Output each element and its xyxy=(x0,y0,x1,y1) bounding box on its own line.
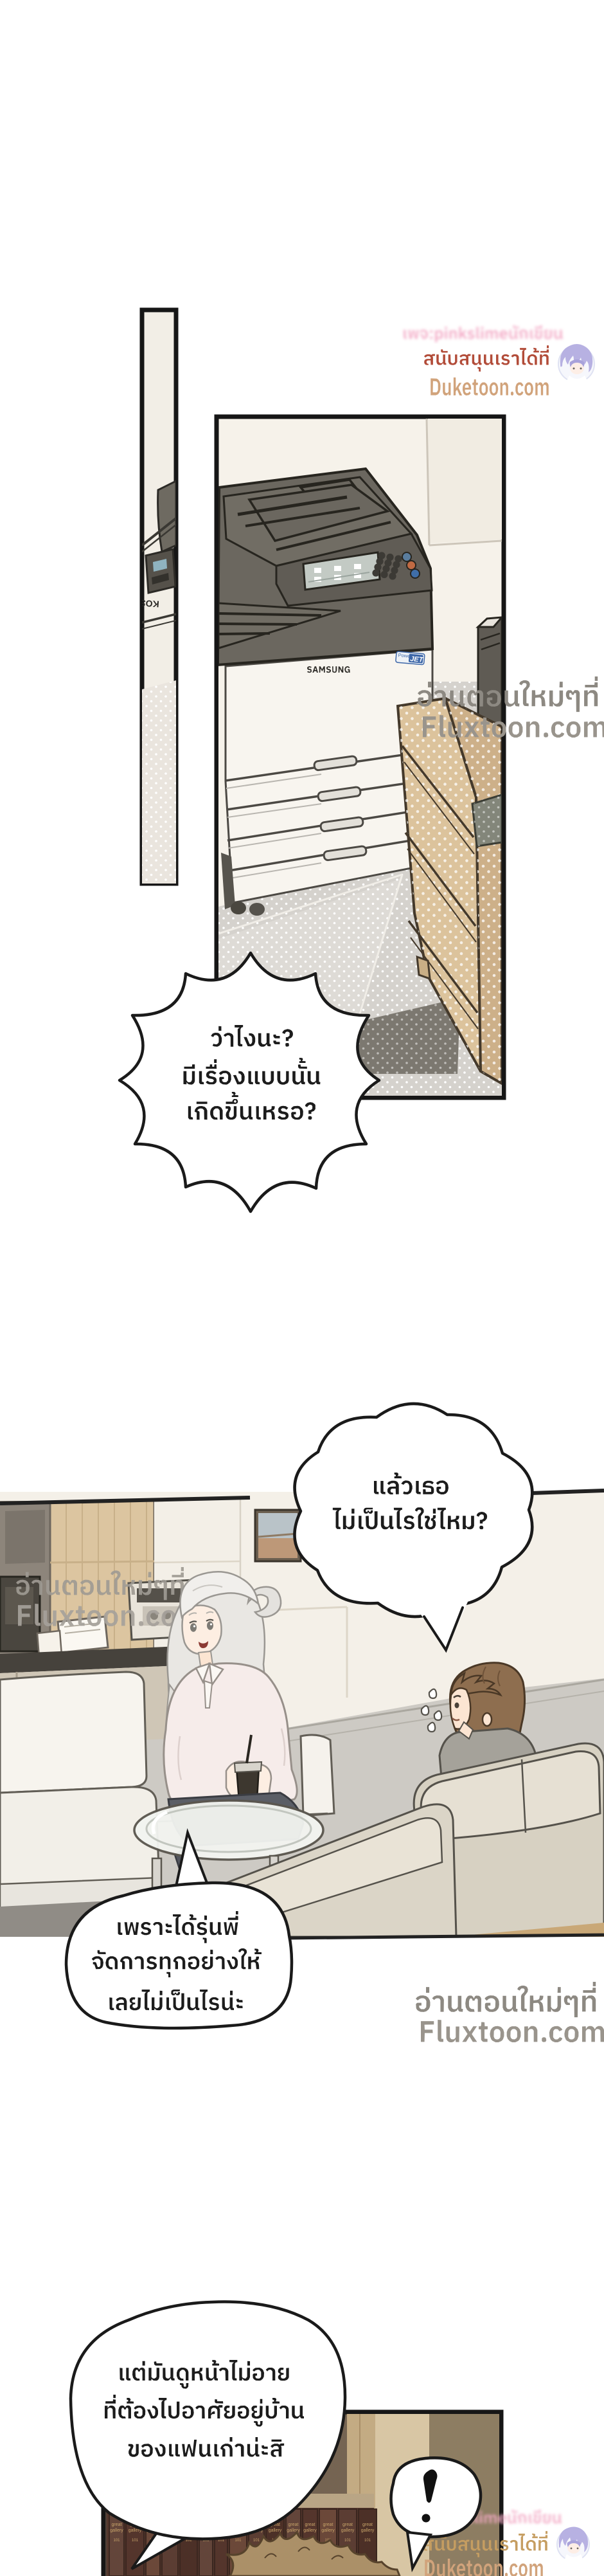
svg-text:great: great xyxy=(112,2523,122,2527)
svg-text:JET: JET xyxy=(410,655,424,664)
svg-text:great: great xyxy=(342,2523,353,2527)
svg-text:101: 101 xyxy=(344,2539,351,2543)
svg-text:gallery: gallery xyxy=(341,2528,355,2533)
svg-text:gallery: gallery xyxy=(287,2528,300,2533)
svg-text:101: 101 xyxy=(132,2539,139,2543)
svg-text:101: 101 xyxy=(235,2539,242,2543)
svg-text:great: great xyxy=(362,2523,373,2527)
svg-text:101: 101 xyxy=(113,2539,120,2543)
svg-text:KOS: KOS xyxy=(139,598,159,610)
svg-text:gallery: gallery xyxy=(361,2528,375,2533)
svg-text:gallery: gallery xyxy=(303,2528,317,2533)
svg-text:101: 101 xyxy=(364,2539,371,2543)
svg-text:gallery: gallery xyxy=(110,2528,123,2533)
svg-text:great: great xyxy=(305,2523,315,2527)
svg-text:101: 101 xyxy=(253,2539,260,2543)
svg-text:great: great xyxy=(323,2523,333,2527)
svg-text:gallery: gallery xyxy=(321,2528,335,2533)
svg-text:great: great xyxy=(289,2523,299,2527)
